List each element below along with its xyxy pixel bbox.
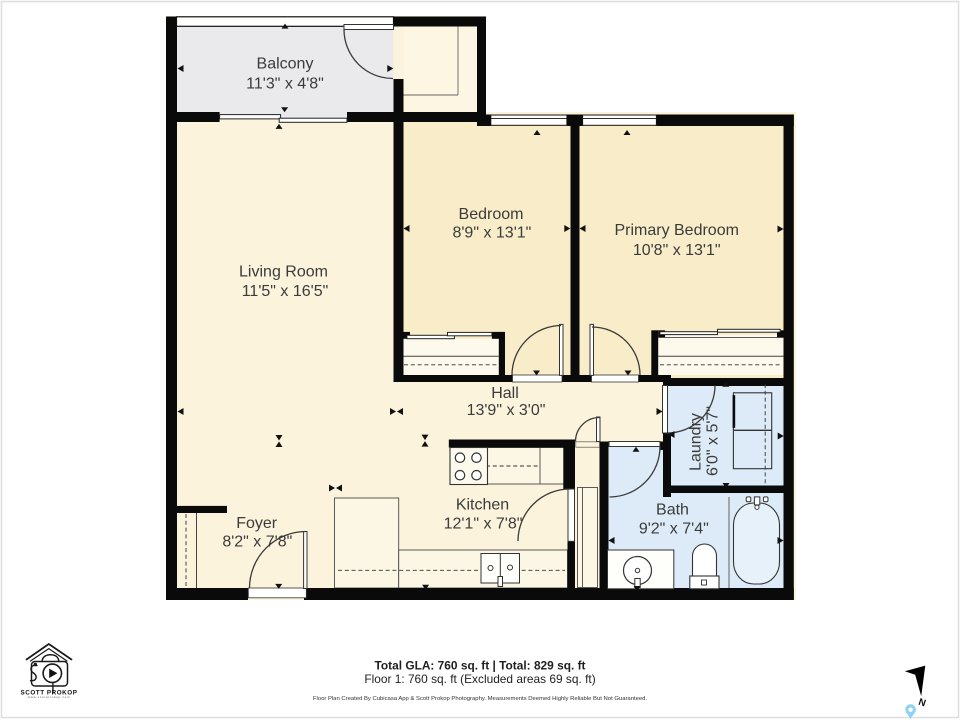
svg-text:8'2" x 7'8": 8'2" x 7'8" (222, 534, 292, 551)
svg-text:Floor 1: 760 sq. ft (Excluded: Floor 1: 760 sq. ft (Excluded areas 69 s… (364, 672, 595, 686)
svg-text:N: N (917, 697, 927, 710)
svg-text:9'2" x 7'4": 9'2" x 7'4" (639, 520, 709, 537)
svg-text:11'5" x 16'5": 11'5" x 16'5" (242, 283, 329, 300)
svg-text:Bedroom: Bedroom (459, 206, 524, 223)
svg-text:Bath: Bath (656, 502, 689, 519)
svg-text:www.scottprokop.com: www.scottprokop.com (28, 695, 70, 699)
svg-text:Primary Bedroom: Primary Bedroom (614, 222, 738, 239)
svg-text:Balcony: Balcony (257, 56, 314, 73)
svg-text:13'9" x 3'0": 13'9" x 3'0" (467, 402, 546, 419)
svg-text:8'9" x 13'1": 8'9" x 13'1" (452, 224, 531, 241)
svg-text:6'0" x 5'7": 6'0" x 5'7" (705, 406, 722, 476)
svg-text:12'1" x 7'8": 12'1" x 7'8" (444, 515, 523, 532)
svg-text:Kitchen: Kitchen (456, 497, 509, 514)
svg-text:Floor Plan Created By Cubicasa: Floor Plan Created By Cubicasa App & Sco… (313, 696, 648, 702)
svg-text:11'3" x 4'8": 11'3" x 4'8" (246, 76, 324, 93)
svg-text:Hall: Hall (491, 385, 519, 402)
svg-text:Foyer: Foyer (236, 515, 278, 532)
svg-text:Total GLA: 760 sq. ft | Total:: Total GLA: 760 sq. ft | Total: 829 sq. f… (375, 659, 586, 673)
svg-text:Laundry: Laundry (688, 413, 705, 471)
svg-text:10'8" x 13'1": 10'8" x 13'1" (633, 242, 721, 259)
svg-text:Living Room: Living Room (239, 264, 328, 281)
